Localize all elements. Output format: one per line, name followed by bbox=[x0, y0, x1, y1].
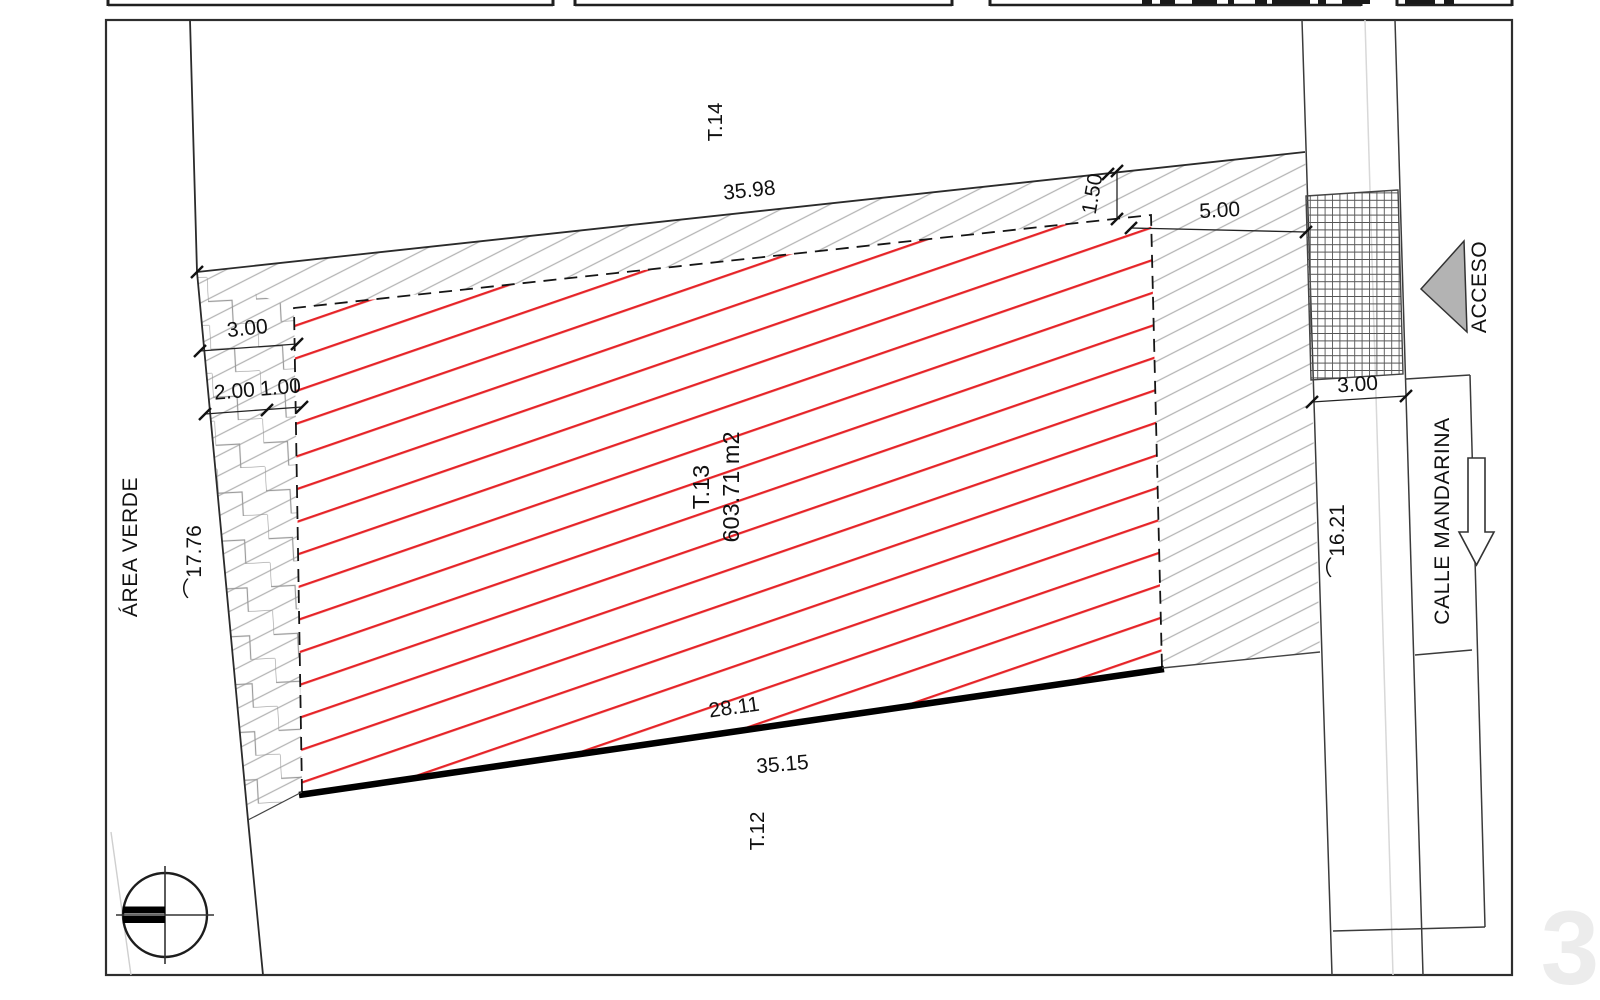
lot-id-label: T.13 bbox=[688, 465, 714, 509]
site-plan-drawing: T.14 35.98 1.50 5.00 3.00 ACCESO CALLE M… bbox=[0, 0, 1600, 1000]
green-boundary-dimension: ⌒17.76 bbox=[183, 525, 206, 599]
left-split-a-dimension: 2.00 bbox=[213, 378, 256, 404]
street-name-label: CALLE MANDARINA bbox=[1431, 417, 1454, 624]
neighbor-lot-north-label: T.14 bbox=[704, 103, 727, 142]
green-area-label: ÁREA VERDE bbox=[119, 477, 142, 617]
lot-area-label: 603.71 m2 bbox=[718, 431, 744, 542]
sidewalk-width-dimension: 3.00 bbox=[1336, 372, 1378, 398]
sheet-number-watermark: 3 bbox=[1541, 890, 1599, 1000]
left-split-b-dimension: 1.00 bbox=[259, 374, 302, 400]
front-total-dimension: 35.15 bbox=[755, 751, 809, 778]
neighbor-lot-south-label: T.12 bbox=[746, 812, 769, 851]
access-label: ACCESO bbox=[1468, 241, 1491, 333]
paved-access-grid bbox=[1306, 190, 1403, 380]
site-plan-page: T.14 35.98 1.50 5.00 3.00 ACCESO CALLE M… bbox=[0, 0, 1600, 1000]
street-frontage-dimension: ⌒16.21 bbox=[1326, 504, 1349, 578]
right-setback-dimension: 5.00 bbox=[1199, 198, 1241, 223]
left-setback-dimension: 3.00 bbox=[226, 315, 269, 342]
